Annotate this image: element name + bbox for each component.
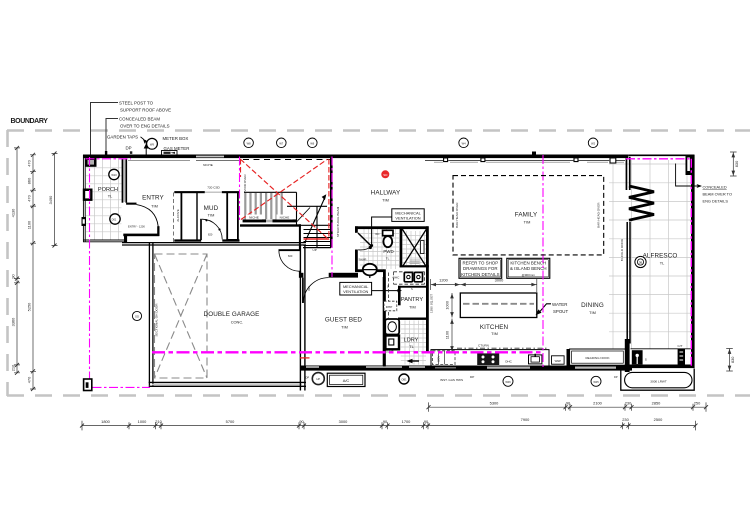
svg-text:GARDEN TAPS: GARDEN TAPS (107, 134, 138, 139)
svg-text:W06: W06 (505, 380, 511, 384)
svg-text:PWD: PWD (383, 249, 393, 254)
svg-text:NICHE: NICHE (203, 163, 213, 167)
svg-text:1000: 1000 (445, 300, 450, 309)
svg-text:W8: W8 (247, 141, 251, 145)
svg-text:OHC: OHC (505, 359, 513, 363)
svg-text:HALLWAY: HALLWAY (371, 190, 401, 197)
svg-text:NICHE: NICHE (280, 216, 290, 220)
svg-text:FAMILY: FAMILY (515, 212, 538, 219)
svg-text:1350 SQ.SET: 1350 SQ.SET (430, 294, 434, 313)
svg-text:SECTIONAL OH DOOR: SECTIONAL OH DOOR (154, 303, 158, 337)
svg-text:READING NOOK: READING NOOK (585, 356, 610, 360)
svg-text:4130: 4130 (11, 208, 16, 217)
svg-text:DP: DP (126, 145, 132, 150)
svg-text:TIM: TIM (151, 203, 158, 208)
svg-text:W7: W7 (279, 141, 283, 145)
svg-text:830: 830 (734, 160, 739, 167)
svg-text:W4: W4 (462, 141, 466, 145)
svg-text:1100: 1100 (445, 330, 450, 339)
svg-text:WATER: WATER (552, 302, 567, 307)
svg-text:3000: 3000 (339, 419, 348, 424)
svg-text:DP: DP (614, 375, 618, 379)
svg-text:5250: 5250 (27, 302, 32, 311)
svg-text:GUEST BED: GUEST BED (325, 316, 363, 323)
svg-text:3360: 3360 (11, 317, 16, 326)
svg-text:DINING: DINING (581, 302, 604, 309)
svg-text:STRUCTURAL BEAM: STRUCTURAL BEAM (336, 206, 340, 237)
svg-text:TIM: TIM (524, 219, 531, 224)
svg-text:C/T: C/T (678, 344, 683, 348)
svg-text:ENTRY - 1200: ENTRY - 1200 (128, 225, 145, 229)
svg-text:TIM: TIM (341, 324, 348, 329)
svg-text:2850: 2850 (652, 400, 661, 405)
svg-text:830: 830 (730, 356, 735, 363)
svg-text:W05: W05 (593, 380, 599, 384)
svg-text:UP: UP (313, 248, 317, 252)
svg-text:SPOUT: SPOUT (553, 309, 568, 314)
svg-text:TL: TL (386, 257, 390, 261)
svg-text:A/C: A/C (343, 378, 350, 383)
svg-text:@900mm: @900mm (522, 273, 536, 277)
svg-text:ENTRY: ENTRY (142, 194, 164, 201)
svg-text:PANTRY: PANTRY (401, 297, 423, 303)
svg-text:W10: W10 (111, 173, 117, 177)
svg-text:VENTILATION: VENTILATION (343, 289, 368, 294)
svg-text:1200: 1200 (439, 278, 448, 283)
svg-text:820: 820 (288, 254, 293, 258)
svg-text:VENTILATION: VENTILATION (395, 216, 420, 221)
svg-text:DRAWINGS FOR: DRAWINGS FOR (463, 266, 497, 271)
svg-text:5700: 5700 (226, 419, 235, 424)
svg-text:W9: W9 (150, 142, 154, 146)
svg-text:PORCH: PORCH (98, 187, 118, 193)
svg-text:2100: 2100 (593, 400, 602, 405)
svg-text:1100: 1100 (27, 220, 32, 229)
svg-text:BI-FOLD DOOR: BI-FOLD DOOR (620, 238, 624, 261)
svg-text:BAR HEAD OVER: BAR HEAD OVER (455, 202, 459, 228)
svg-text:820: 820 (307, 286, 311, 291)
svg-text:KITCHEN BENCH: KITCHEN BENCH (510, 260, 546, 265)
svg-text:LDRY: LDRY (404, 338, 419, 344)
svg-text:METER BOX: METER BOX (163, 136, 189, 141)
svg-text:TIM: TIM (589, 310, 596, 315)
svg-text:3490: 3490 (48, 195, 53, 204)
svg-text:230: 230 (622, 417, 629, 422)
svg-text:OVER TO ENG DETAILS: OVER TO ENG DETAILS (120, 124, 170, 129)
svg-text:NICHE: NICHE (249, 216, 259, 220)
svg-text:CONCEALED: CONCEALED (703, 185, 727, 190)
svg-text:ALCOVE: ALCOVE (176, 209, 180, 222)
svg-text:TIM: TIM (491, 331, 498, 336)
svg-text:DB: DB (639, 260, 643, 264)
svg-text:DOUBLE GARAGE: DOUBLE GARAGE (204, 311, 260, 318)
svg-text:W2: W2 (591, 141, 595, 145)
svg-text:210: 210 (11, 364, 16, 371)
svg-text:& ISLAND BENCH: & ISLAND BENCH (510, 266, 547, 271)
svg-text:ALFRESCO: ALFRESCO (643, 253, 678, 260)
svg-text:TIM: TIM (409, 305, 416, 310)
svg-text:S: S (411, 287, 413, 291)
svg-text:860: 860 (27, 177, 32, 184)
svg-text:S: S (387, 285, 389, 289)
svg-text:CONCEALED BEAM: CONCEALED BEAM (119, 117, 160, 122)
svg-text:1800: 1800 (101, 419, 110, 424)
svg-text:TIM: TIM (382, 197, 389, 202)
svg-text:470: 470 (27, 376, 32, 383)
svg-text:7900: 7900 (521, 417, 530, 422)
svg-text:250: 250 (694, 400, 701, 405)
svg-text:STEEL POST TO: STEEL POST TO (119, 101, 154, 106)
svg-text:OHC: OHC (393, 276, 401, 280)
svg-text:230: 230 (625, 400, 632, 405)
svg-text:ENG DETAILS: ENG DETAILS (703, 199, 729, 204)
svg-text:DP: DP (306, 376, 310, 380)
svg-text:KITCHEN: KITCHEN (480, 324, 509, 331)
svg-text:1700: 1700 (402, 419, 411, 424)
svg-text:WC: WC (375, 232, 379, 236)
svg-text:GD: GD (135, 315, 139, 319)
svg-text:MUD: MUD (204, 205, 219, 212)
svg-text:REFER TO SHOP: REFER TO SHOP (462, 260, 498, 265)
svg-text:D01: D01 (112, 218, 117, 222)
svg-text:470: 470 (27, 159, 32, 166)
svg-text:820: 820 (208, 233, 213, 237)
svg-text:BEAM OVER TO: BEAM OVER TO (703, 192, 732, 197)
svg-text:DHP: DHP (386, 305, 393, 309)
svg-text:5300: 5300 (490, 400, 499, 405)
svg-text:VOID OVER: VOID OVER (243, 174, 247, 192)
svg-text:SUPPORT ROOF ABOVE: SUPPORT ROOF ABOVE (120, 108, 171, 113)
svg-text:INST. GAS HWS: INST. GAS HWS (440, 378, 463, 382)
svg-text:470: 470 (27, 194, 32, 201)
svg-text:TIM: TIM (208, 213, 215, 218)
svg-text:S/OV: S/OV (437, 356, 441, 362)
svg-text:CONC.: CONC. (231, 320, 244, 325)
svg-text:KITCHEN DETAILS: KITCHEN DETAILS (461, 272, 500, 277)
svg-text:S: S (645, 358, 647, 362)
svg-text:210: 210 (155, 419, 162, 424)
svg-text:SHWR: SHWR (359, 257, 367, 261)
svg-text:3000 LRWT: 3000 LRWT (650, 379, 667, 383)
svg-text:BAR HEAD OVER: BAR HEAD OVER (597, 202, 601, 228)
svg-text:1000: 1000 (138, 419, 147, 424)
svg-text:DP: DP (470, 375, 474, 379)
svg-text:W6: W6 (310, 141, 314, 145)
svg-text:BOUNDARY: BOUNDARY (11, 118, 49, 125)
svg-text:2500: 2500 (654, 417, 663, 422)
svg-text:OB1: OB1 (401, 378, 407, 382)
svg-text:HP: HP (316, 377, 320, 381)
svg-text:720 CSD: 720 CSD (207, 186, 220, 190)
svg-text:WMP: WMP (555, 359, 562, 363)
svg-text:CTURN: CTURN (478, 343, 489, 347)
